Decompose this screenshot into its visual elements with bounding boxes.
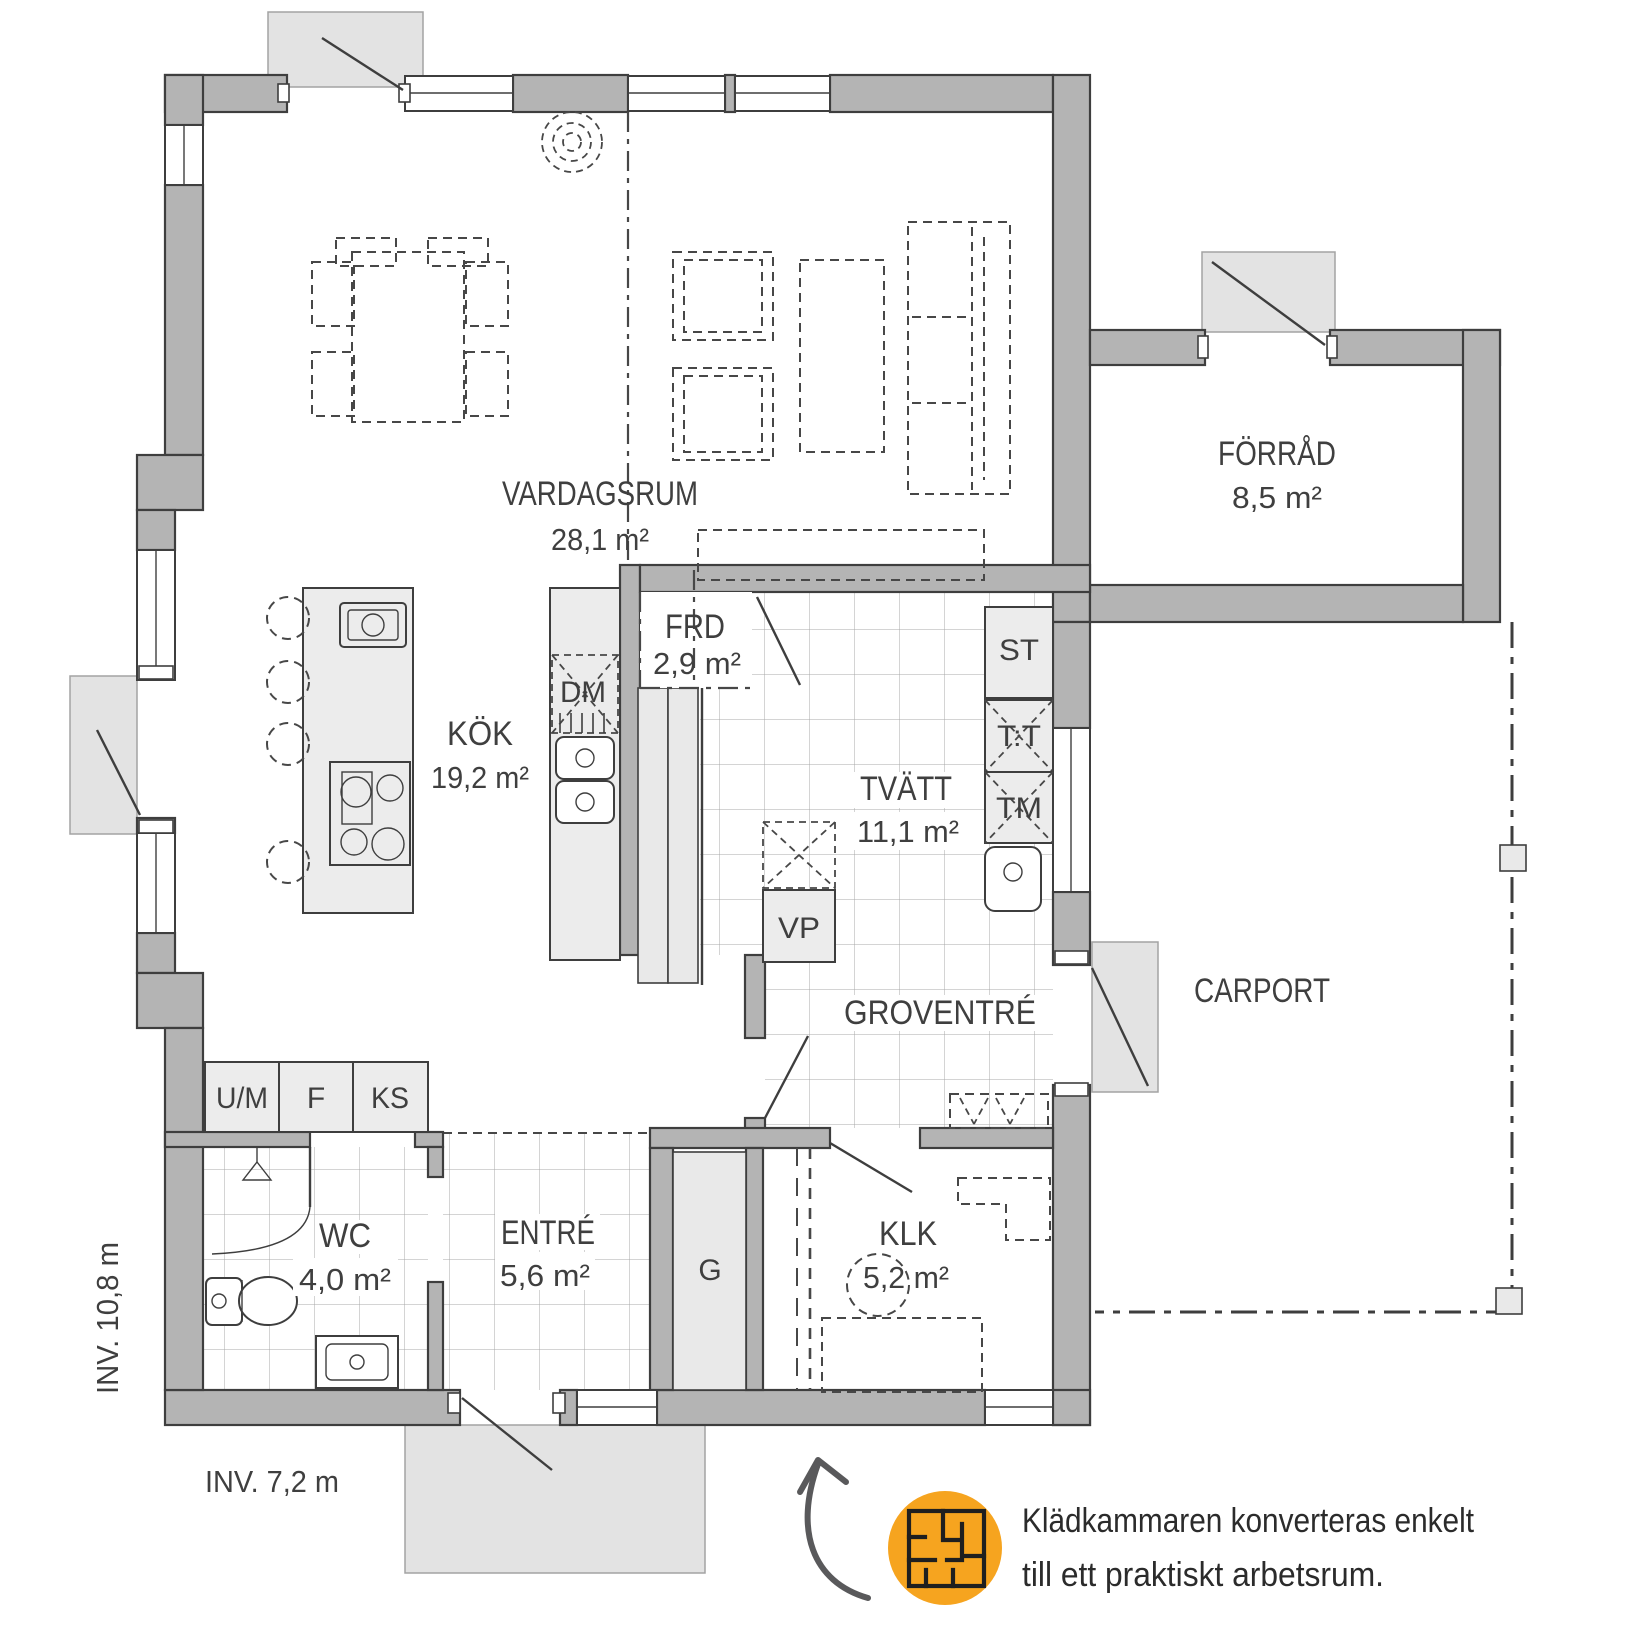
sofa-group — [673, 222, 1010, 580]
toilet — [206, 1277, 297, 1325]
floorplan-page: VARDAGSRUM 28,1 m² KÖK 19,2 m² FÖRRÅD 8,… — [0, 0, 1625, 1625]
room-area-kok: 19,2 m² — [431, 760, 529, 795]
room-label-entre: ENTRÉ — [501, 1214, 595, 1252]
room-area-vardagsrum: 28,1 m² — [551, 522, 649, 557]
window-left-1 — [165, 125, 203, 185]
fireplace — [542, 112, 602, 172]
klk-shelf — [958, 1178, 1050, 1240]
patio-pad-top — [268, 12, 423, 87]
room-label-groventre: GROVENTRÉ — [844, 994, 1036, 1032]
arrow-head — [800, 1460, 846, 1492]
kitchen-sinks — [556, 737, 614, 823]
floorplan-drawing: VARDAGSRUM 28,1 m² KÖK 19,2 m² FÖRRÅD 8,… — [0, 0, 1625, 1625]
ks-label: KS — [371, 1082, 409, 1115]
heat-pump-label: VP — [778, 912, 820, 945]
room-label-tvatt: TVÄTT — [860, 770, 952, 808]
left-door-pad — [70, 676, 137, 834]
window-right-utility — [1053, 728, 1090, 892]
forrad-entry-pad — [1202, 252, 1335, 332]
dimension-bottom: INV. 7,2 m — [205, 1464, 339, 1499]
dining-set — [312, 238, 508, 422]
washbasin — [316, 1336, 398, 1388]
room-label-frd: FRD — [665, 608, 725, 646]
room-area-tvatt: 11,1 m² — [857, 814, 959, 849]
wardrobe-label: G — [698, 1254, 721, 1287]
entry-porch-pad — [405, 1425, 705, 1573]
klk-desk — [822, 1318, 982, 1392]
room-label-klk: KLK — [879, 1215, 937, 1253]
dishwasher-label: DM — [560, 676, 606, 709]
room-area-wc: 4,0 m² — [299, 1262, 391, 1297]
room-area-entre: 5,6 m² — [500, 1258, 590, 1293]
washer-label: TM — [996, 792, 1042, 825]
window-top-3 — [735, 76, 830, 111]
window-top-2 — [628, 76, 725, 111]
st-label: ST — [999, 634, 1039, 667]
room-label-vardagsrum: VARDAGSRUM — [502, 475, 698, 513]
carport-post — [1496, 1288, 1522, 1314]
room-area-forrad: 8,5 m² — [1232, 480, 1322, 515]
annotation-line1: Klädkammaren konverteras enkelt — [1022, 1502, 1474, 1540]
room-area-frd: 2,9 m² — [653, 646, 741, 681]
room-label-forrad: FÖRRÅD — [1218, 435, 1336, 473]
klk-door — [830, 1143, 912, 1192]
annotation: Klädkammaren konverteras enkelt till ett… — [800, 1460, 1474, 1605]
sofa — [908, 222, 1010, 494]
window-bottom-2 — [985, 1390, 1053, 1425]
kitchen-counter — [550, 588, 620, 960]
window-left-3 — [137, 833, 175, 933]
dryer-label: T:T — [997, 720, 1041, 753]
kitchen-island — [303, 588, 413, 913]
um-label: U/M — [216, 1082, 268, 1115]
f-label: F — [307, 1082, 325, 1115]
window-bottom-1 — [577, 1390, 657, 1425]
window-left-2 — [137, 550, 175, 680]
window-top-1 — [405, 76, 513, 111]
carport-boundary — [1095, 622, 1526, 1314]
room-label-wc: WC — [319, 1217, 371, 1255]
carport-post — [1500, 845, 1526, 871]
carport-door-pad — [1092, 942, 1158, 1092]
laundry-sink — [985, 847, 1041, 911]
room-label-kok: KÖK — [447, 715, 513, 753]
annotation-line2: till ett praktiskt arbetsrum. — [1022, 1556, 1384, 1594]
room-label-carport: CARPORT — [1194, 972, 1330, 1010]
curved-arrow — [808, 1464, 868, 1598]
room-area-klk: 5,2 m² — [863, 1260, 949, 1295]
coffee-table — [800, 260, 884, 452]
dimension-left: INV. 10,8 m — [90, 1242, 125, 1394]
